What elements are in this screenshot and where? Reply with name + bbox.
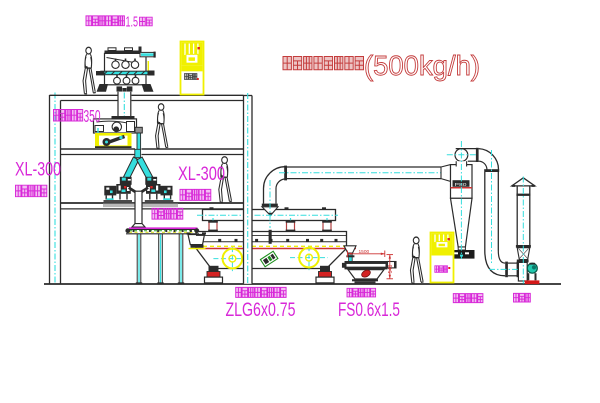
svg-text:1500: 1500 [359,249,370,255]
svg-text:P80: P80 [455,182,467,188]
svg-text:XL-300: XL-300 [15,159,61,181]
svg-text:540: 540 [388,265,394,274]
svg-text:FS0.6x1.5: FS0.6x1.5 [338,299,400,321]
svg-text:XL-300: XL-300 [178,164,225,185]
svg-text:1.5: 1.5 [126,13,139,30]
svg-text:(500kg/h): (500kg/h) [364,50,480,81]
svg-text:ZLG6x0.75: ZLG6x0.75 [226,299,296,321]
svg-text:350: 350 [84,106,101,126]
